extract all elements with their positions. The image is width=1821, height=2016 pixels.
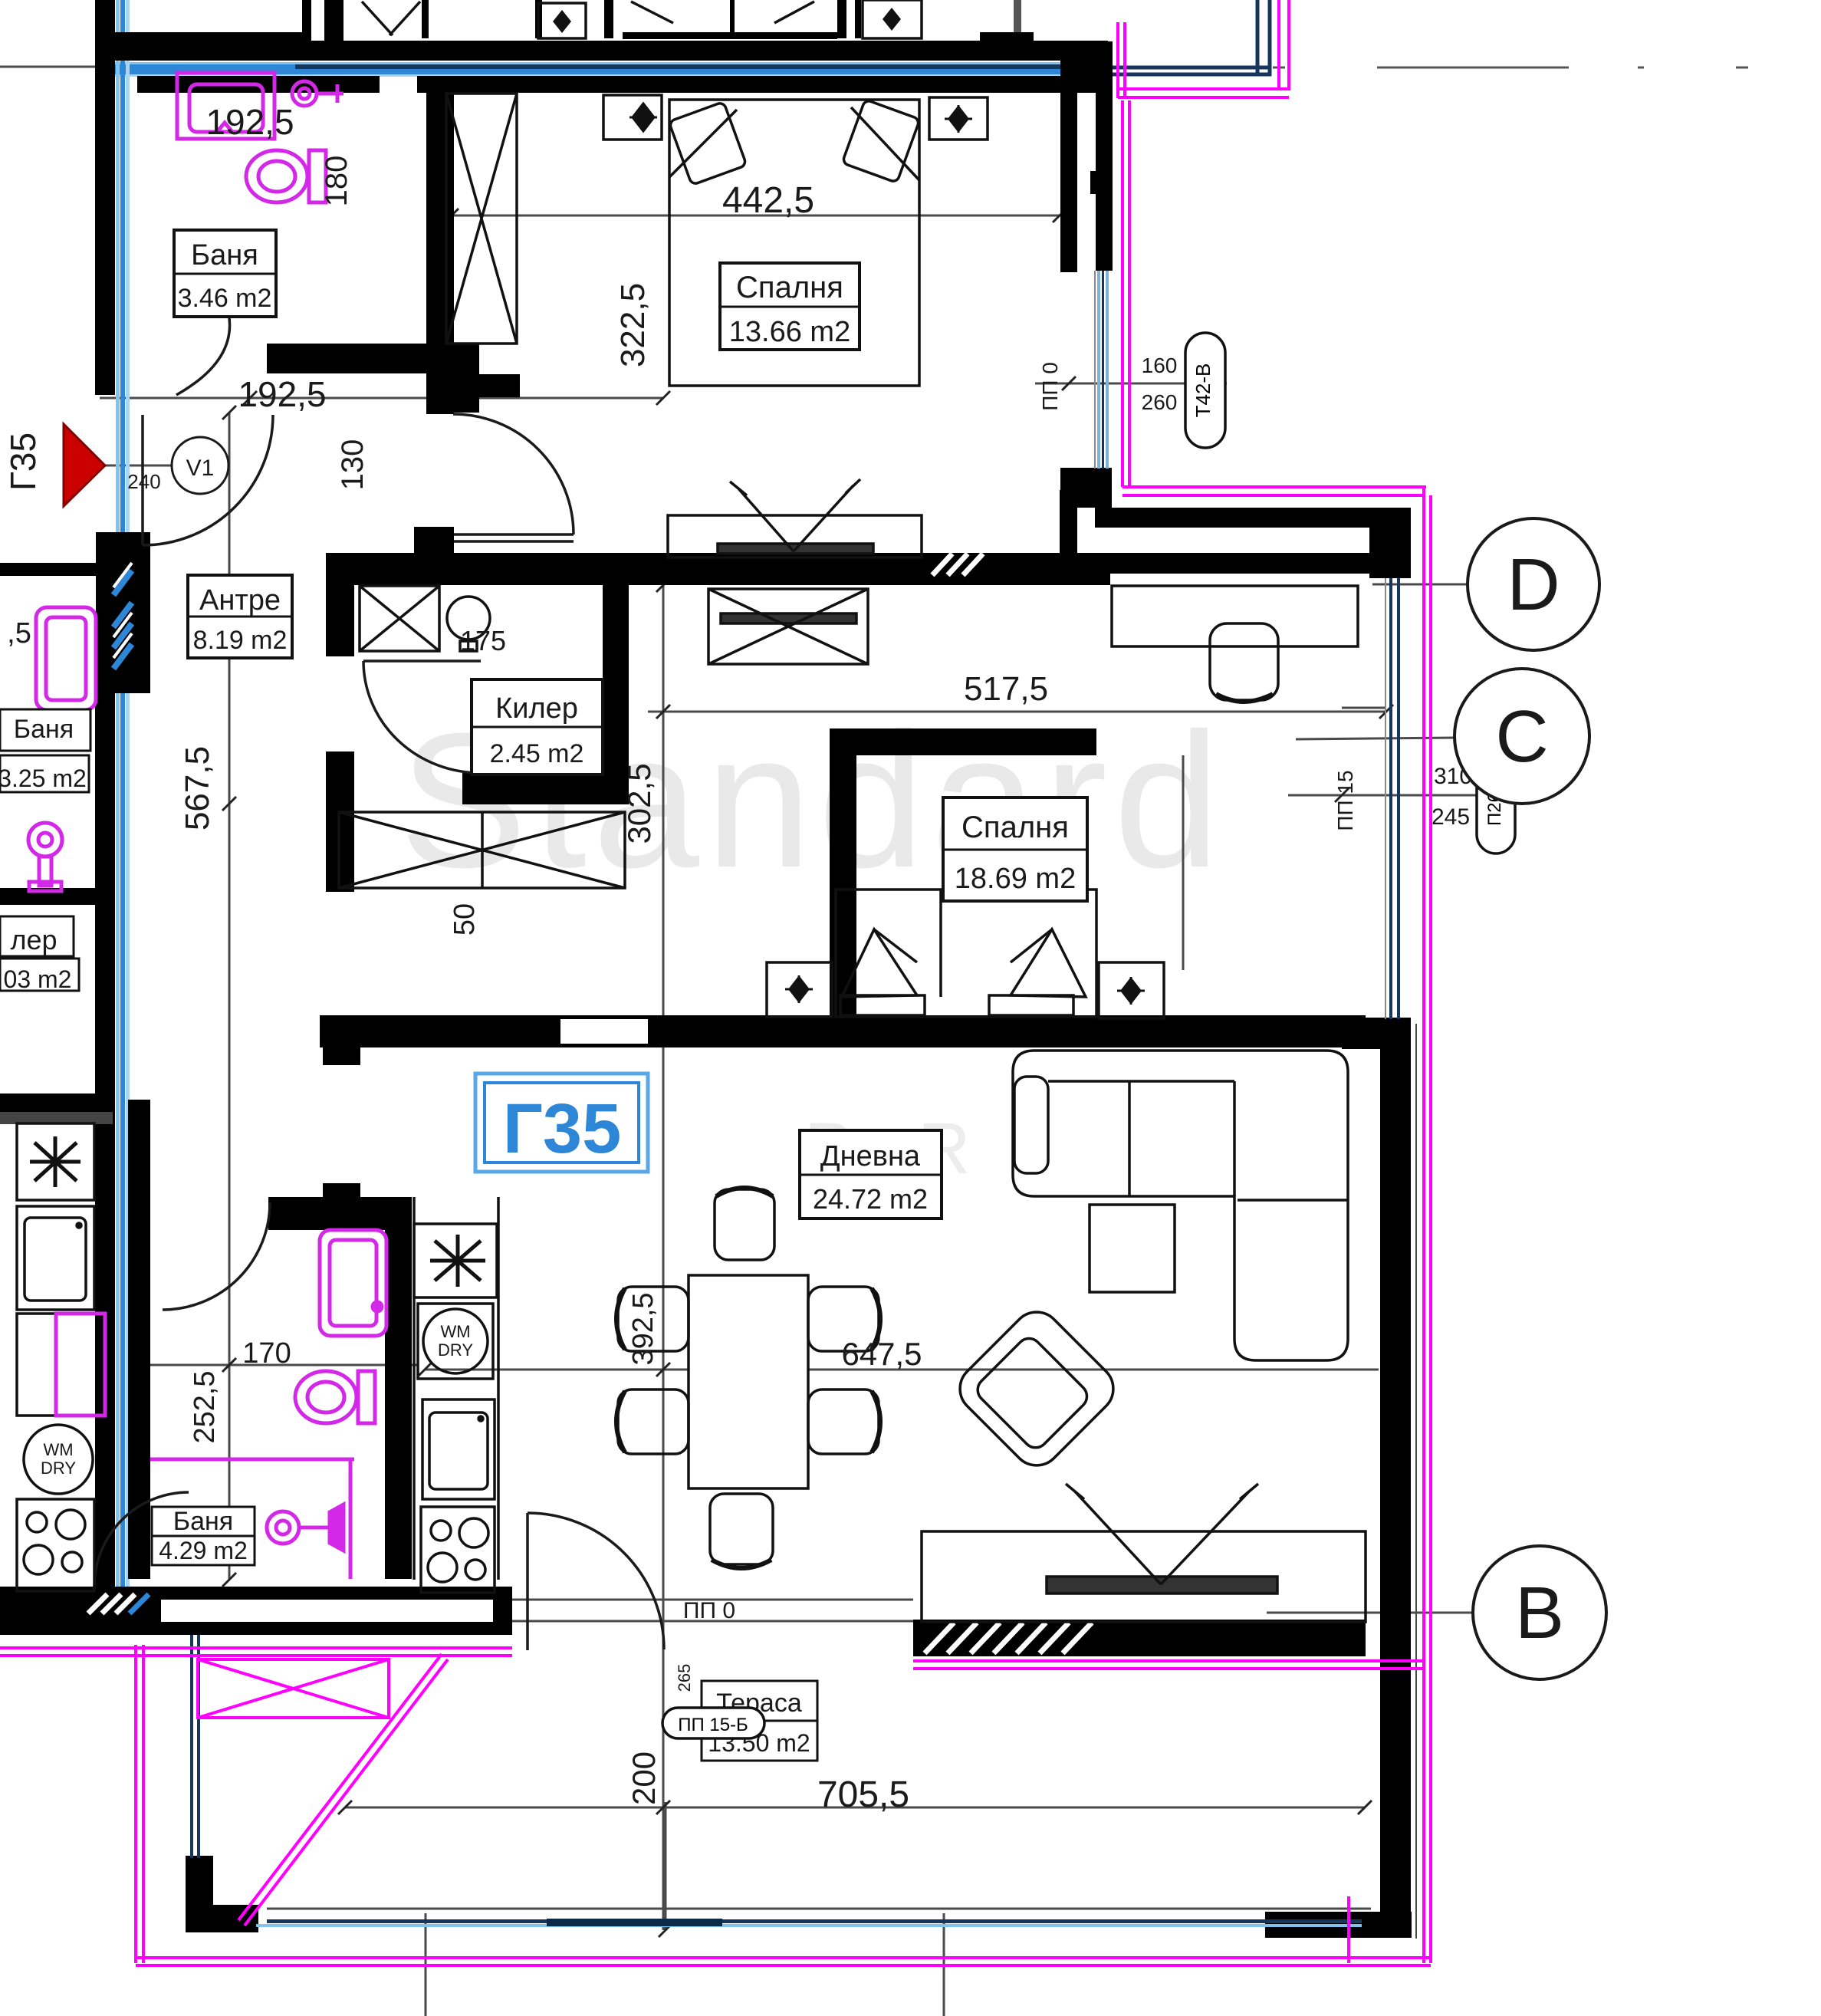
svg-text:192,5: 192,5 xyxy=(238,374,326,414)
svg-text:DRY: DRY xyxy=(41,1459,76,1478)
svg-text:517,5: 517,5 xyxy=(964,670,1048,708)
svg-text:Баня: Баня xyxy=(191,239,258,271)
svg-text:лер: лер xyxy=(10,924,57,955)
svg-text:Спалня: Спалня xyxy=(961,811,1069,844)
svg-text:302,5: 302,5 xyxy=(621,763,657,844)
svg-text:03 m2: 03 m2 xyxy=(4,965,72,993)
svg-text:ПП 0: ПП 0 xyxy=(1038,362,1062,411)
svg-text:13.66 m2: 13.66 m2 xyxy=(729,316,850,348)
svg-text:200: 200 xyxy=(626,1751,662,1805)
svg-text:8.19 m2: 8.19 m2 xyxy=(193,626,288,655)
svg-text:192,5: 192,5 xyxy=(205,102,294,142)
svg-text:Антре: Антре xyxy=(199,584,281,617)
svg-text:240: 240 xyxy=(127,470,160,493)
svg-text:442,5: 442,5 xyxy=(722,180,814,221)
svg-text:Т42-В: Т42-В xyxy=(1192,363,1215,418)
svg-text:260: 260 xyxy=(1142,390,1178,414)
svg-text:4.29 m2: 4.29 m2 xyxy=(159,1537,248,1564)
svg-text:647,5: 647,5 xyxy=(841,1336,922,1372)
svg-text:3.46 m2: 3.46 m2 xyxy=(178,284,272,313)
svg-text:Баня: Баня xyxy=(173,1507,233,1536)
svg-text:Г35: Г35 xyxy=(3,432,43,491)
svg-text:C: C xyxy=(1495,696,1548,778)
svg-text:567,5: 567,5 xyxy=(179,746,216,830)
svg-text:Баня: Баня xyxy=(14,715,74,744)
svg-text:V1: V1 xyxy=(186,455,215,481)
svg-text:,5: ,5 xyxy=(7,617,31,650)
svg-text:180: 180 xyxy=(320,156,353,207)
svg-text:175: 175 xyxy=(460,625,506,656)
svg-text:ПП 15-Б: ПП 15-Б xyxy=(678,1715,748,1735)
svg-text:24.72 m2: 24.72 m2 xyxy=(813,1183,928,1215)
svg-text:3.25 m2: 3.25 m2 xyxy=(0,765,87,792)
svg-text:245: 245 xyxy=(1431,804,1470,830)
svg-text:Дневна: Дневна xyxy=(820,1140,921,1172)
svg-text:322,5: 322,5 xyxy=(614,283,652,367)
svg-text:B: B xyxy=(1515,1572,1564,1654)
svg-text:D: D xyxy=(1507,544,1560,626)
svg-text:265: 265 xyxy=(675,1664,694,1692)
svg-text:18.69 m2: 18.69 m2 xyxy=(955,863,1076,895)
svg-text:WM: WM xyxy=(43,1440,73,1459)
svg-text:WM: WM xyxy=(440,1322,470,1341)
svg-text:252,5: 252,5 xyxy=(189,1370,221,1443)
svg-text:392,5: 392,5 xyxy=(627,1292,659,1365)
svg-text:ПП 15: ПП 15 xyxy=(1333,770,1357,830)
svg-text:Спалня: Спалня xyxy=(736,271,843,304)
svg-text:50: 50 xyxy=(449,903,481,936)
svg-text:705,5: 705,5 xyxy=(817,1774,909,1815)
svg-text:130: 130 xyxy=(336,439,370,491)
svg-text:Килер: Килер xyxy=(495,692,578,725)
svg-text:DRY: DRY xyxy=(438,1340,473,1360)
svg-text:Г35: Г35 xyxy=(503,1090,622,1168)
svg-text:ПП 0: ПП 0 xyxy=(683,1598,735,1623)
svg-text:170: 170 xyxy=(242,1337,291,1370)
svg-text:2.45 m2: 2.45 m2 xyxy=(490,739,584,768)
svg-text:160: 160 xyxy=(1142,354,1178,377)
